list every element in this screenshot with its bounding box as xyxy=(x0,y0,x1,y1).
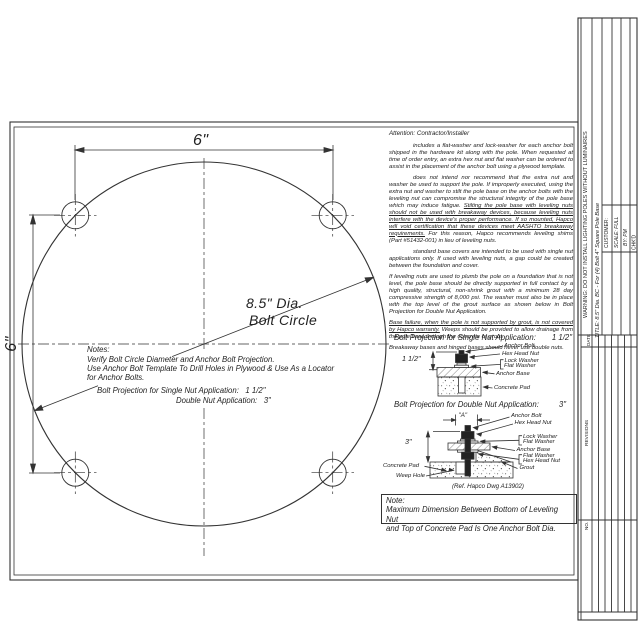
notes-line-3: for Anchor Bolts. xyxy=(87,373,144,382)
no-label: NO. xyxy=(584,522,589,530)
double-hex-head-nut-top-label: Hex Head Nut xyxy=(515,420,552,426)
warning-text: WARNING: DO NOT INSTALL LIGHTING POLES W… xyxy=(583,131,589,318)
single-dim-label: 1 1/2" xyxy=(402,354,421,363)
double-nut-diagram xyxy=(425,415,523,479)
dia-label-line1: 8.5" Dia. xyxy=(246,295,303,311)
double-flat-washer-top-label: Flat Washer xyxy=(523,439,555,445)
notes-single-projection: Bolt Projection for Single Nut Applicati… xyxy=(97,386,265,395)
double-grout-label: Grout xyxy=(520,465,535,471)
customer-label: CUSTOMER: xyxy=(604,218,610,248)
chkd-label: CHK'D xyxy=(632,234,638,250)
double-nut-heading: Bolt Projection for Double Nut Applicati… xyxy=(394,400,566,409)
single-flat-washer-label: Flat Washer xyxy=(504,363,536,369)
drawing-sheet: WARNING: DO NOT INSTALL LIGHTING POLES W… xyxy=(0,0,640,640)
title-text: TITLE: 8.5" Dia. BC - For (4) Bolt 4" Sq… xyxy=(595,203,601,338)
dia-label-line2: Bolt Circle xyxy=(249,312,317,328)
note-box-heading: Note: xyxy=(386,496,572,505)
double-ref-label: (Ref. Hapco Dwg A13902) xyxy=(452,483,524,490)
single-hex-head-nut-label: Hex Head Nut xyxy=(502,351,539,357)
notes-heading: Notes: xyxy=(87,345,110,354)
attention-heading: Attention: Contractor/Installer xyxy=(389,130,573,137)
date-label: DATE xyxy=(586,334,591,346)
dim-top-text: 6" xyxy=(193,132,209,150)
note-box-line-1: Maximum Dimension Between Bottom of Leve… xyxy=(386,505,572,524)
dimension-lines xyxy=(29,145,373,473)
double-anchor-bolt-label: Anchor Bolt xyxy=(511,413,541,419)
dim-left-text: 6" xyxy=(3,335,20,351)
notes-line-2: Use Anchor Bolt Template To Drill Holes … xyxy=(87,364,334,373)
scale-label: SCALE: FULL xyxy=(614,216,620,248)
single-nut-heading: Bolt Projection for Single Nut Applicati… xyxy=(394,333,572,342)
note-box-line-2: and Top of Concrete Pad Is One Anchor Bo… xyxy=(386,524,572,533)
by-label: BY: PM xyxy=(623,228,629,246)
single-anchor-bolt-label: Anchor Bolt xyxy=(504,343,534,349)
attention-paragraph-1: includes a flat-washer and lock-washer f… xyxy=(389,143,573,171)
single-anchor-base-label: Anchor Base xyxy=(496,371,530,377)
double-hex-head-nut-bottom-label: Hex Head Nut xyxy=(523,458,560,464)
attention-paragraph-6: Breakaway bases and hinged bases should … xyxy=(389,345,573,352)
note-box: Note: Maximum Dimension Between Bottom o… xyxy=(381,494,577,524)
double-dim-3-label: 3" xyxy=(405,437,412,446)
double-concrete-pad-label: Concrete Pad xyxy=(383,463,419,469)
attention-block: Attention: Contractor/Installer includes… xyxy=(389,130,573,357)
attention-paragraph-2: does not intend nor recommend that the e… xyxy=(389,175,573,244)
notes-double-projection: Double Nut Application: 3" xyxy=(176,396,271,405)
double-dim-a-label: "A" xyxy=(459,412,468,419)
notes-line-1: Verify Bolt Circle Diameter and Anchor B… xyxy=(87,355,275,364)
single-concrete-pad-label: Concrete Pad xyxy=(494,385,530,391)
double-weep-hole-label: Weep Hole xyxy=(396,473,425,479)
revisions-label: REVISIONS xyxy=(584,420,590,446)
attention-paragraph-3: standard base covers are intended to be … xyxy=(389,249,573,270)
attention-paragraph-4: If leveling nuts are used to plumb the p… xyxy=(389,274,573,315)
